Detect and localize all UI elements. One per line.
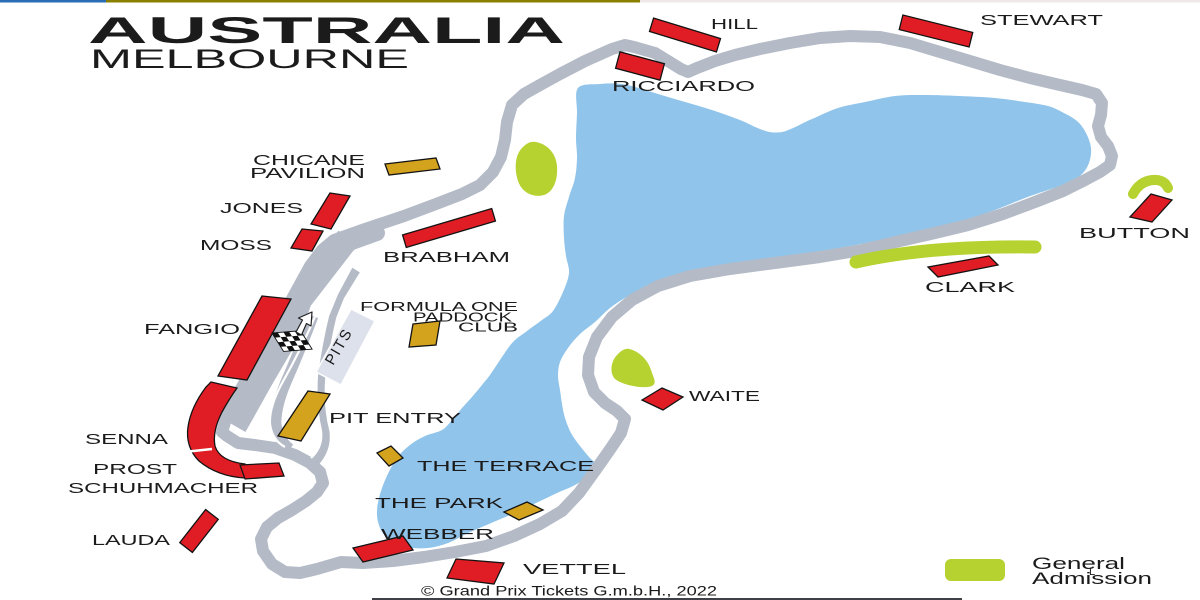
- svg-text:FANGIO: FANGIO: [144, 321, 240, 338]
- svg-text:THE TERRACE: THE TERRACE: [417, 458, 594, 475]
- svg-text:THE PARK: THE PARK: [375, 495, 503, 512]
- svg-text:JONES: JONES: [220, 200, 303, 217]
- svg-text:VETTEL: VETTEL: [523, 561, 626, 578]
- svg-text:WAITE: WAITE: [689, 388, 760, 405]
- svg-text:BUTTON: BUTTON: [1079, 225, 1190, 242]
- svg-text:BRABHAM: BRABHAM: [383, 249, 510, 266]
- svg-text:CLARK: CLARK: [925, 279, 1015, 296]
- svg-text:Admission: Admission: [1032, 569, 1152, 588]
- svg-text:SENNA: SENNA: [85, 431, 168, 448]
- svg-text:LAUDA: LAUDA: [92, 532, 170, 549]
- svg-text:HILL: HILL: [711, 16, 758, 33]
- svg-text:STEWART: STEWART: [980, 12, 1103, 29]
- svg-text:CLUB: CLUB: [458, 320, 518, 335]
- svg-text:© Grand Prix Tickets G.m.b.H.,: © Grand Prix Tickets G.m.b.H., 2022: [421, 583, 717, 599]
- svg-text:MELBOURNE: MELBOURNE: [90, 44, 409, 74]
- svg-text:PROST: PROST: [93, 461, 177, 478]
- svg-text:WEBBER: WEBBER: [381, 526, 494, 543]
- svg-text:RICCIARDO: RICCIARDO: [612, 78, 755, 95]
- svg-text:PAVILION: PAVILION: [250, 165, 365, 182]
- svg-text:PIT ENTRY: PIT ENTRY: [329, 410, 461, 427]
- svg-text:SCHUHMACHER: SCHUHMACHER: [68, 480, 258, 497]
- svg-text:MOSS: MOSS: [200, 237, 272, 254]
